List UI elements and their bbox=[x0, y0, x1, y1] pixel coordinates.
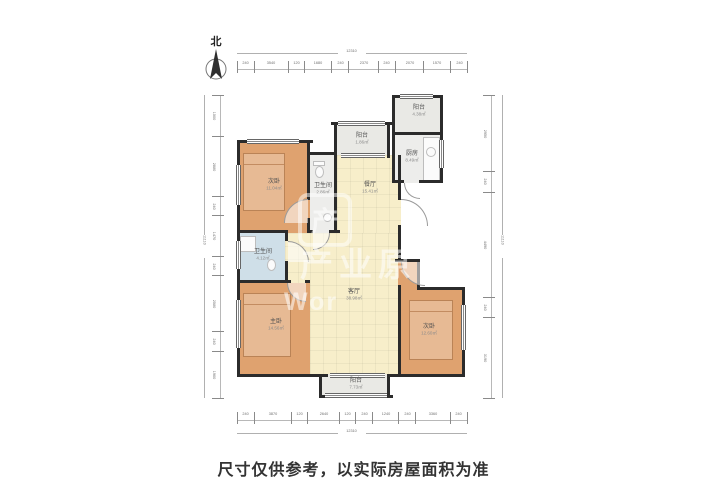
toilet-icon bbox=[315, 166, 324, 178]
dimension-segment: 2880 bbox=[212, 136, 224, 196]
dimension-segment: 3870 bbox=[254, 412, 291, 424]
dimension-segment: 240 bbox=[450, 61, 467, 73]
dimension-segment: 1570 bbox=[423, 61, 450, 73]
dimension-segment: 240 bbox=[212, 331, 224, 350]
dimension-top-total: 12310 bbox=[237, 48, 467, 58]
dimension-right-total: 11110 bbox=[497, 95, 507, 398]
dimension-segment: 240 bbox=[398, 412, 415, 424]
dimension-segment: 2640 bbox=[307, 412, 339, 424]
dimension-segment: 240 bbox=[331, 61, 348, 73]
dimension-segment: 1960 bbox=[212, 351, 224, 398]
sink-icon bbox=[323, 213, 332, 222]
dimension-segment: 120 bbox=[339, 412, 356, 424]
dimension-segment: 4490 bbox=[483, 192, 495, 297]
bed-icon bbox=[243, 293, 291, 357]
dimension-segment: 240 bbox=[378, 61, 395, 73]
shower-icon bbox=[240, 236, 256, 252]
dimension-segment: 3360 bbox=[415, 412, 450, 424]
dimension-segment: 240 bbox=[483, 297, 495, 318]
dimension-bottom-total: 12310 bbox=[237, 428, 467, 438]
window-icon bbox=[236, 300, 241, 348]
dimension-segment: 3540 bbox=[254, 61, 288, 73]
window-icon bbox=[439, 140, 444, 168]
dimension-segment: 3190 bbox=[483, 317, 495, 398]
dimension-right-segments: 295024044902403190 bbox=[483, 95, 495, 399]
floorplan: 次卧11.04㎡ 卫生间2.86㎡ 阳台1.86㎡ 餐厅15.41㎡ 阳台4.3… bbox=[237, 95, 467, 398]
sliding-door-icon bbox=[330, 373, 385, 378]
window-icon bbox=[325, 393, 387, 398]
dimension-segment: 1470 bbox=[212, 215, 224, 256]
dimension-segment: 2950 bbox=[483, 95, 495, 171]
dimension-segment: 2070 bbox=[395, 61, 424, 73]
window-icon bbox=[247, 139, 299, 144]
dimension-segment: 240 bbox=[237, 412, 254, 424]
dimension-top-segments: 24035401201680240237024020701570240 bbox=[237, 61, 468, 73]
window-icon bbox=[236, 241, 241, 269]
room-balcony-top-right bbox=[395, 95, 443, 135]
dimension-segment: 2580 bbox=[212, 275, 224, 331]
bed-icon bbox=[243, 153, 285, 211]
kitchen-sink-icon bbox=[426, 147, 436, 157]
entry-door-icon bbox=[401, 199, 428, 226]
dimension-segment: 120 bbox=[291, 412, 308, 424]
dimension-segment: 2370 bbox=[348, 61, 378, 73]
dimension-left-segments: 15002880240147024025802401960 bbox=[212, 95, 224, 399]
sliding-door-icon bbox=[341, 153, 385, 158]
dimension-segment: 120 bbox=[288, 61, 304, 73]
dimension-segment: 240 bbox=[483, 171, 495, 192]
dimension-segment: 1240 bbox=[372, 412, 398, 424]
dimension-left-total: 11110 bbox=[199, 95, 209, 398]
disclaimer-caption: 尺寸仅供参考，以实际房屋面积为准 bbox=[0, 456, 707, 480]
window-icon bbox=[400, 94, 433, 99]
window-icon bbox=[236, 165, 241, 205]
dimension-segment: 240 bbox=[212, 256, 224, 275]
dimension-segment: 240 bbox=[212, 196, 224, 215]
kitchen-counter-icon bbox=[423, 137, 440, 181]
north-label: 北 bbox=[200, 36, 232, 48]
compass: 北 bbox=[200, 36, 232, 87]
window-icon bbox=[338, 121, 385, 126]
room-living bbox=[310, 233, 401, 377]
window-icon bbox=[461, 305, 466, 350]
room-bathroom-small bbox=[310, 155, 337, 233]
north-arrow-icon bbox=[201, 48, 231, 82]
toilet-icon bbox=[267, 259, 276, 271]
dimension-segment: 1680 bbox=[304, 61, 331, 73]
dimension-segment: 1500 bbox=[212, 95, 224, 136]
door-icon bbox=[404, 183, 420, 199]
dimension-segment: 240 bbox=[237, 61, 254, 73]
floorplan-image: 北 12310 24035401201680240237024020701570… bbox=[0, 0, 707, 500]
dimension-segment: 240 bbox=[450, 412, 467, 424]
dimension-segment: 240 bbox=[355, 412, 372, 424]
dimension-bottom-segments: 2403870120264012024012402403360240 bbox=[237, 412, 468, 424]
bed-icon bbox=[409, 300, 453, 360]
